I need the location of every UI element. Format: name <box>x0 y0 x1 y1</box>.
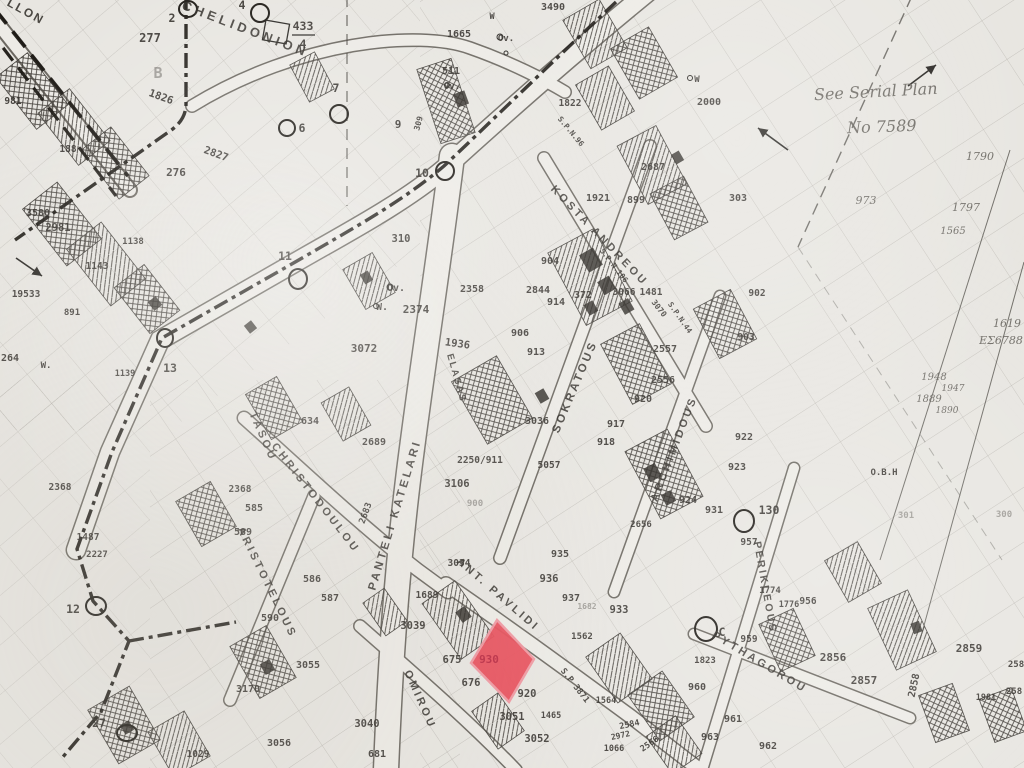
plot-number: 904 <box>541 256 559 267</box>
plot-number: 2374 <box>403 303 430 316</box>
plot-number: 5057 <box>538 460 561 471</box>
handwritten-annotation: 1889 <box>916 394 942 405</box>
plot-number: 3052 <box>524 733 549 745</box>
plot-number: 931 <box>705 505 723 516</box>
plot-number: 1921 <box>586 193 610 204</box>
handwritten-annotation: 1948 <box>921 372 946 383</box>
plot-number: 1066 <box>604 744 624 754</box>
plot-number: 264 <box>1 353 19 364</box>
plot-number: 2656 <box>630 520 652 530</box>
plot-number: 936 <box>540 573 559 585</box>
plot-number: 1682 <box>577 602 596 611</box>
plot-number: 923 <box>728 462 746 473</box>
plot-number: W. <box>41 361 52 371</box>
plot-number: 1823 <box>694 656 716 666</box>
plot-number: W. <box>376 302 388 313</box>
plot-number: W <box>694 75 700 85</box>
plot-number: 19533 <box>12 289 41 300</box>
plot-number: 900 <box>467 499 483 509</box>
plot-number: 587 <box>321 593 339 604</box>
plot-number: 2250/911 <box>457 455 503 466</box>
handwritten-annotation: 1797 <box>952 201 980 214</box>
plot-number: 3106 <box>444 478 469 490</box>
plot-number: 2557 <box>653 344 677 355</box>
plot-number: 433 <box>293 19 314 33</box>
plot-number: 930 <box>479 653 499 666</box>
junction-number: 10 <box>415 166 429 180</box>
plot-number: Ov. <box>498 34 514 44</box>
plot-number: 634 <box>301 416 319 427</box>
plot-number: 1981 <box>976 693 996 703</box>
plot-number: 913 <box>527 347 545 358</box>
plot-number: 2857 <box>851 674 878 687</box>
plot-number: 2856 <box>820 651 847 664</box>
plot-number: 1481 <box>640 287 663 298</box>
plot-number: W <box>489 12 495 22</box>
plot-number: 1689 <box>416 590 439 601</box>
plot-number: 1465 <box>541 711 561 721</box>
plot-number: 3055 <box>296 660 320 671</box>
plot-number: O.B.H <box>870 468 897 478</box>
plot-number: Ov. <box>444 82 460 92</box>
plot-number: 914 <box>547 297 565 308</box>
plot-number: 258 <box>1008 660 1024 670</box>
plot-number: 188 <box>59 144 76 155</box>
plot-number: 303 <box>729 193 747 204</box>
plot-number: 586 <box>303 574 321 585</box>
plot-number: 2859 <box>956 642 983 655</box>
plot-number: 960 <box>688 682 706 693</box>
plot-number: 920 <box>518 688 537 700</box>
plot-number: 2000 <box>697 97 721 108</box>
plot-number: 258 <box>1006 687 1022 697</box>
plot-number: 3056 <box>267 738 291 749</box>
plot-number: 959 <box>740 634 757 645</box>
junction-number: 12 <box>66 602 80 616</box>
junction-number: 11 <box>278 249 292 263</box>
junction-number: 6 <box>299 121 306 135</box>
plot-number: 899 <box>627 195 645 206</box>
plot-number: 3066 <box>613 287 636 298</box>
plot-number: 2368 <box>49 482 72 493</box>
plot-number: 301 <box>898 511 914 521</box>
plot-number: 1143 <box>86 261 109 272</box>
junction-number: 13 <box>163 361 177 375</box>
junction-number: 130 <box>759 503 780 517</box>
plot-number: 676 <box>462 677 481 689</box>
plot-number: 902 <box>748 288 765 299</box>
junction-number: 7 <box>333 81 340 95</box>
plot-number: 585 <box>245 503 263 514</box>
cadastral-map: 24671011131227130C 943341826282798118827… <box>0 0 1024 768</box>
plot-number: 1822 <box>559 98 582 109</box>
plot-number: 681 <box>368 749 386 760</box>
junction-number: 2 <box>169 11 176 25</box>
plot-number: 2689 <box>362 437 386 448</box>
plot-number: 3490 <box>541 2 565 13</box>
plot-number: 675 <box>443 654 462 666</box>
handwritten-annotation: 1947 <box>942 384 965 394</box>
plot-number: 917 <box>607 419 625 430</box>
plot-number: 9 <box>395 118 402 131</box>
handwritten-annotation: No 7589 <box>846 116 917 137</box>
plot-number: 920 <box>634 394 652 405</box>
plot-number: 1776 <box>779 600 799 610</box>
plot-number: 935 <box>551 549 569 560</box>
plot-number: 1562 <box>571 632 593 642</box>
plot-number: 1139 <box>115 369 135 379</box>
plot-number: 2981 <box>45 222 70 234</box>
plot-number: 1487 <box>77 532 100 543</box>
plot-number: 962 <box>759 741 777 752</box>
plot-number: 3040 <box>354 718 379 730</box>
handwritten-annotation: 1890 <box>936 406 959 416</box>
plot-number: 2368 <box>229 484 252 495</box>
plot-number: 1665 <box>447 29 471 40</box>
plot-number: 956 <box>799 596 816 607</box>
plot-number: B <box>153 64 162 82</box>
plot-number: 933 <box>610 604 629 616</box>
plot-number: 2556 <box>651 375 675 386</box>
plot-number: 3170 <box>236 684 260 695</box>
plot-number: 891 <box>64 308 80 318</box>
plot-number: 277 <box>139 31 161 45</box>
plot-number: 961 <box>724 714 742 725</box>
plot-number: 3051 <box>499 711 524 723</box>
junction-number: 4 <box>239 0 246 12</box>
plot-number: 1564 <box>596 696 616 706</box>
plot-number: 511 <box>442 66 460 77</box>
plot-number: 3072 <box>351 342 378 355</box>
cadastral-map-sheet: 24671011131227130C 943341826282798118827… <box>0 0 1024 768</box>
plot-number: 310 <box>392 233 411 245</box>
plot-number: 963 <box>701 732 719 743</box>
plot-number: 924 <box>679 495 697 506</box>
plot-number: 276 <box>166 166 186 179</box>
plot-number: 903 <box>737 332 754 343</box>
plot-number: 1029 <box>187 749 210 760</box>
plot-number: 300 <box>996 510 1012 520</box>
handwritten-annotation: 1565 <box>940 226 965 237</box>
plot-number: 922 <box>735 432 753 443</box>
junction-number: 27 <box>92 716 106 730</box>
plot-number: 3039 <box>400 620 425 632</box>
plot-number: Ov. <box>387 283 405 294</box>
plot-number: 2358 <box>460 284 484 295</box>
handwritten-annotation: 973 <box>856 194 877 207</box>
handwritten-annotation: 1619 <box>993 317 1021 330</box>
handwritten-annotation: ΕΣ6788 <box>978 334 1023 347</box>
plot-number: 2687 <box>641 162 665 173</box>
plot-number: 2844 <box>526 285 550 296</box>
plot-number: 3580 <box>26 208 50 219</box>
plot-number: 981 <box>4 96 21 107</box>
plot-number: 2227 <box>86 550 108 560</box>
plot-number: 1138 <box>122 237 144 247</box>
plot-number: 918 <box>597 437 615 448</box>
plot-number: 372 <box>574 290 592 301</box>
handwritten-annotation: 1790 <box>966 150 994 163</box>
plot-number: 906 <box>511 328 529 339</box>
plot-number: 3036 <box>525 416 549 427</box>
